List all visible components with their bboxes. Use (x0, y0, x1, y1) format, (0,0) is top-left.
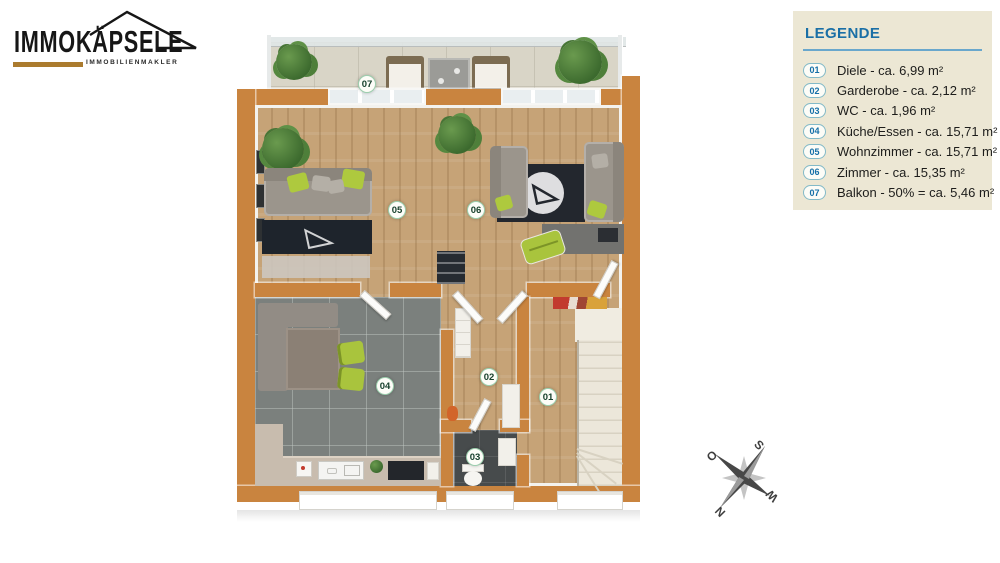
balcony-railing-left (266, 35, 271, 89)
legend: LEGENDE 01 Diele - ca. 6,99 m² 02 Garder… (793, 11, 992, 210)
window-diele (557, 491, 623, 510)
sofa-room6-left (490, 146, 528, 218)
stairs (577, 340, 622, 486)
legend-item-label: Balkon - 50% = ca. 5,46 m² (837, 185, 994, 200)
plant-balcony-left (276, 44, 312, 80)
dining-chair (337, 367, 365, 392)
legend-num-badge: 04 (803, 124, 826, 139)
legend-item-zimmer: 06 Zimmer - ca. 15,35 m² (803, 162, 982, 182)
legend-item-label: Wohnzimmer - ca. 15,71 m² (837, 144, 997, 159)
brand-gold-bar (13, 62, 83, 67)
room-badge-07: 07 (358, 75, 376, 93)
kitchen-tray (427, 462, 439, 480)
legend-num-badge: 07 (803, 185, 826, 200)
room-badge-03: 03 (466, 448, 484, 466)
tv-sideboard (262, 220, 372, 254)
balcony-door-left (328, 88, 426, 105)
brand-tagline: IMMOBILIENMAKLER (86, 59, 178, 66)
wardrobe-cabinet (455, 308, 471, 358)
page: IMMOKÄPSELE IMMOBILIENMAKLER LEGENDE 01 … (0, 0, 1000, 563)
compass-letter-north: N (712, 504, 728, 520)
room-badge-01: 01 (539, 388, 557, 406)
brand-name: IMMOKÄPSELE (14, 24, 183, 60)
legend-item-kueche: 04 Küche/Essen - ca. 15,71 m² (803, 121, 982, 141)
dining-table (286, 328, 340, 390)
logo: IMMOKÄPSELE IMMOBILIENMAKLER (6, 4, 256, 76)
balcony-chair-right (472, 56, 510, 91)
kitchen-sink (318, 461, 364, 480)
plant-kitchen-small (370, 460, 383, 473)
toilet-bowl (464, 471, 482, 486)
legend-item-label: WC - ca. 1,96 m² (837, 103, 935, 118)
kitchen-counter-left (255, 424, 283, 458)
balcony-table (428, 58, 470, 91)
balcony-door-right (501, 88, 601, 105)
dining-chair (337, 340, 366, 365)
legend-num-badge: 06 (803, 165, 826, 180)
room-badge-06: 06 (467, 201, 485, 219)
legend-num-badge: 05 (803, 144, 826, 159)
legend-item-label: Diele - ca. 6,99 m² (837, 63, 943, 78)
balcony-chair-left (386, 56, 424, 91)
compass-letter-south: S (751, 437, 767, 453)
wc-sink-cabinet (498, 438, 516, 466)
window-wc (446, 491, 514, 510)
legend-item-garderobe: 02 Garderobe - ca. 2,12 m² (803, 80, 982, 100)
legend-num-badge: 02 (803, 83, 826, 98)
legend-num-badge: 01 (803, 63, 826, 78)
coffee-machine (296, 461, 312, 477)
plant-balcony-right (558, 40, 602, 84)
legend-item-wohnzimmer: 05 Wohnzimmer - ca. 15,71 m² (803, 142, 982, 162)
rug-living-room (262, 256, 370, 278)
legend-num-badge: 03 (803, 103, 826, 118)
window-kitchen (299, 491, 437, 510)
legend-item-wc: 03 WC - ca. 1,96 m² (803, 101, 982, 121)
legend-item-diele: 01 Diele - ca. 6,99 m² (803, 60, 982, 80)
room-badge-04: 04 (376, 377, 394, 395)
wall-wc-top-left (441, 420, 471, 432)
building-shadow (237, 510, 640, 522)
legend-divider (803, 49, 982, 51)
legend-item-balkon: 07 Balkon - 50% = ca. 5,46 m² (803, 182, 982, 202)
wall-mid-left (255, 283, 360, 297)
shelf-unit (437, 251, 465, 284)
stairs-landing (575, 308, 622, 342)
sofa-room6-right (584, 142, 624, 222)
plant-living-room (262, 128, 304, 170)
legend-item-label: Zimmer - ca. 15,35 m² (837, 165, 965, 180)
room-badge-05: 05 (388, 201, 406, 219)
wall-right (622, 76, 640, 500)
legend-item-label: Küche/Essen - ca. 15,71 m² (837, 124, 997, 139)
wall-left (237, 89, 255, 500)
sofa-living-room (264, 168, 372, 216)
room-badge-02: 02 (480, 368, 498, 386)
legend-item-label: Garderobe - ca. 2,12 m² (837, 83, 976, 98)
wall-mid-center (390, 283, 441, 297)
laundry-basket (447, 406, 458, 421)
compass-rose: S O N W (698, 432, 790, 524)
plant-center (438, 116, 476, 154)
cooktop (388, 461, 424, 480)
hall-cabinet (502, 384, 520, 428)
watermark-logo-icon (262, 220, 372, 254)
compass-letter-east: O (704, 448, 721, 465)
compass-letter-west: W (763, 487, 781, 505)
dining-bench-side (258, 303, 288, 391)
legend-title: LEGENDE (805, 25, 982, 42)
wall-wc-right-pier (517, 455, 529, 486)
